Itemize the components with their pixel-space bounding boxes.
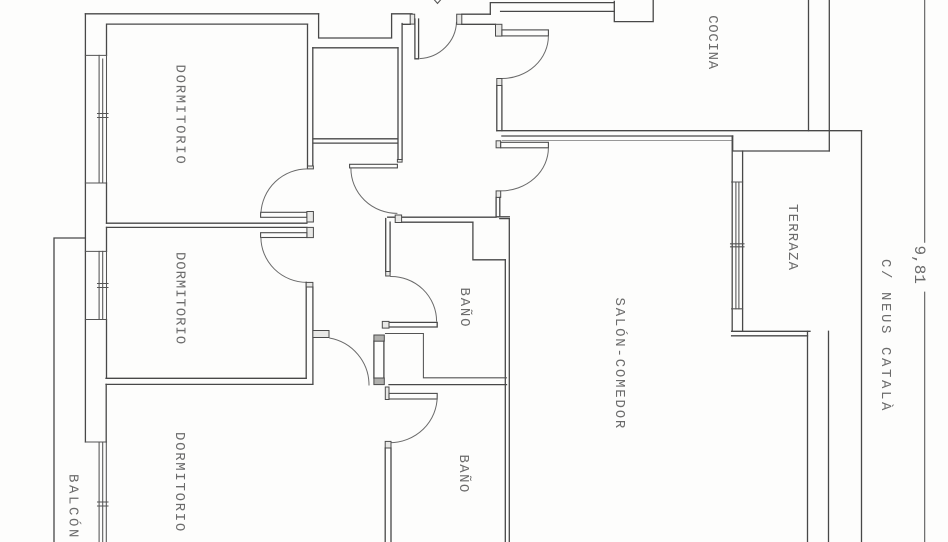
svg-text:BAÑO: BAÑO bbox=[455, 455, 472, 494]
svg-text:TERRAZA: TERRAZA bbox=[784, 204, 800, 271]
svg-text:BALCÓN: BALCÓN bbox=[65, 474, 83, 540]
svg-text:SALÓN-COMEDOR: SALÓN-COMEDOR bbox=[611, 298, 629, 431]
svg-text:BAÑO: BAÑO bbox=[456, 288, 473, 329]
svg-text:DORMITORIO: DORMITORIO bbox=[172, 252, 188, 345]
svg-text:C/ NEUS CATALÀ: C/ NEUS CATALÀ bbox=[877, 259, 895, 413]
svg-text:9,81: 9,81 bbox=[910, 246, 928, 284]
svg-text:DORMITORIO: DORMITORIO bbox=[172, 65, 188, 166]
svg-text:DORMITORIO: DORMITORIO bbox=[171, 432, 187, 533]
svg-text:COCINA: COCINA bbox=[704, 15, 720, 70]
